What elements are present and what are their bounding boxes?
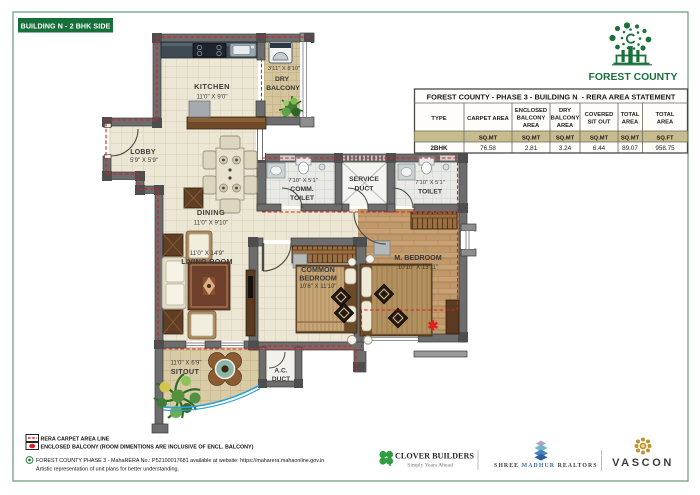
svg-text:SQ.MT: SQ.MT [590, 136, 609, 142]
svg-text:2.81: 2.81 [525, 145, 538, 152]
svg-text:SITOUT: SITOUT [171, 367, 200, 376]
svg-text:SHREE MADHUR REALTORS: SHREE MADHUR REALTORS [494, 463, 598, 469]
svg-text:TOILET: TOILET [418, 189, 443, 196]
svg-text:✱: ✱ [428, 318, 439, 333]
svg-text:CARPET AREA: CARPET AREA [467, 116, 509, 122]
svg-text:M. BEDROOM: M. BEDROOM [394, 253, 442, 262]
svg-text:DINING: DINING [197, 208, 225, 217]
svg-text:10'8" X 11'10": 10'8" X 11'10" [300, 284, 337, 290]
svg-text:DUCT: DUCT [355, 186, 375, 193]
svg-text:VASCON: VASCON [612, 457, 674, 469]
svg-text:TYPE: TYPE [431, 116, 446, 122]
svg-text:76.58: 76.58 [480, 145, 496, 152]
svg-text:SIT OUT: SIT OUT [588, 120, 611, 126]
svg-text:7'10" X 5'1": 7'10" X 5'1" [288, 178, 318, 184]
svg-text:LIVING ROOM: LIVING ROOM [181, 257, 233, 266]
svg-text:A.C.: A.C. [274, 368, 287, 375]
svg-text:89.07: 89.07 [622, 145, 638, 152]
svg-text:SERVICE: SERVICE [349, 176, 379, 183]
svg-text:BALCONY: BALCONY [551, 116, 580, 122]
svg-text:11'0" X 9'0": 11'0" X 9'0" [196, 94, 227, 101]
svg-text:7'10" X 5'1": 7'10" X 5'1" [415, 180, 445, 186]
svg-text:ENCLOSED: ENCLOSED [515, 108, 547, 114]
svg-text:TOILET: TOILET [290, 195, 315, 202]
svg-text:TOTAL: TOTAL [656, 112, 675, 118]
svg-text:5'9" X 5'9": 5'9" X 5'9" [130, 157, 158, 164]
svg-text:DRY: DRY [275, 76, 290, 83]
svg-text:11'0" X 14'9": 11'0" X 14'9" [190, 250, 225, 257]
svg-text:SQ.FT: SQ.FT [656, 136, 674, 142]
svg-text:FOREST COUNTY: FOREST COUNTY [589, 72, 678, 83]
svg-text:TOTAL: TOTAL [621, 112, 640, 118]
svg-text:Artistic representation of uni: Artistic representation of unit plans fo… [36, 467, 179, 473]
svg-text:10'10" X 13'11": 10'10" X 13'11" [398, 265, 438, 271]
svg-text:SQ.MT: SQ.MT [621, 136, 640, 142]
svg-text:DUCT: DUCT [272, 376, 290, 383]
svg-text:CLOVER BUILDERS: CLOVER BUILDERS [395, 452, 474, 461]
svg-text:KITCHEN: KITCHEN [194, 82, 230, 91]
svg-text:BUILDING N - 2 BHK SIDE: BUILDING N - 2 BHK SIDE [21, 23, 111, 31]
svg-text:958.75: 958.75 [655, 145, 675, 152]
svg-text:ENCLOSED BALCONY (ROOM DIMENTI: ENCLOSED BALCONY (ROOM DIMENTIONS ARE IN… [41, 445, 254, 451]
svg-text:LOBBY: LOBBY [130, 149, 156, 156]
svg-text:FOREST COUNTY - PHASE 3 - BUIL: FOREST COUNTY - PHASE 3 - BUILDING N - R… [427, 93, 676, 102]
svg-text:2BHK: 2BHK [430, 145, 448, 152]
svg-text:Simply Years Ahead: Simply Years Ahead [407, 463, 453, 469]
svg-text:BALCONY: BALCONY [266, 85, 300, 92]
svg-text:COMM.: COMM. [290, 186, 314, 193]
svg-text:AREA: AREA [622, 120, 639, 126]
svg-text:SQ.MT: SQ.MT [522, 136, 541, 142]
svg-text:3'11" X 8'10": 3'11" X 8'10" [268, 66, 300, 72]
svg-text:6.44: 6.44 [593, 145, 606, 152]
svg-text:AREA: AREA [657, 120, 674, 126]
svg-text:AREA: AREA [557, 123, 574, 129]
svg-text:SQ.MT: SQ.MT [479, 136, 498, 142]
svg-text:FOREST COUNTY PHASE 3 - MahaRE: FOREST COUNTY PHASE 3 - MahaRERA No.: P5… [36, 458, 324, 464]
svg-text:AREA: AREA [523, 123, 540, 129]
svg-text:11'0" X 6'9": 11'0" X 6'9" [170, 360, 201, 367]
svg-text:3.24: 3.24 [559, 145, 572, 152]
svg-text:SQ.MT: SQ.MT [556, 136, 575, 142]
svg-text:11'0" X 9'10": 11'0" X 9'10" [194, 220, 229, 227]
svg-text:RERA CARPET AREA LINE: RERA CARPET AREA LINE [41, 437, 110, 443]
svg-text:COVERED: COVERED [585, 112, 614, 118]
svg-text:DRY: DRY [559, 108, 571, 114]
svg-text:BALCONY: BALCONY [517, 116, 546, 122]
svg-text:BEDROOM: BEDROOM [299, 274, 337, 283]
